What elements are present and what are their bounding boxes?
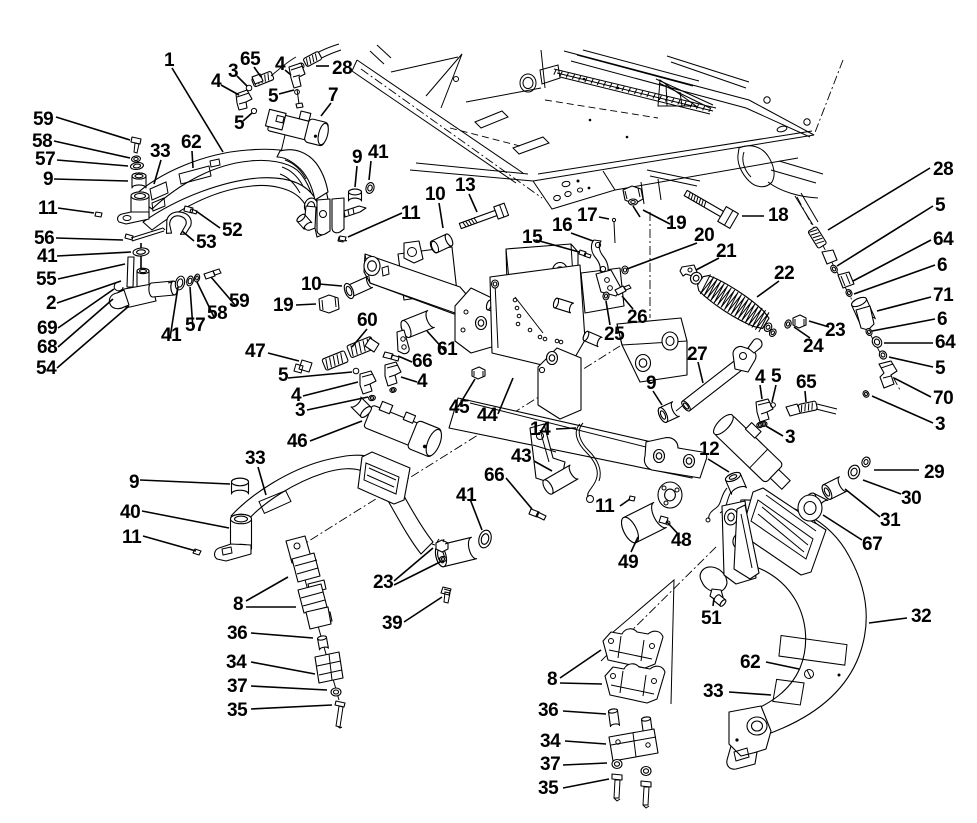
svg-text:71: 71 [933, 285, 954, 306]
svg-text:9: 9 [129, 472, 139, 493]
svg-text:11: 11 [595, 496, 615, 517]
svg-text:6: 6 [937, 309, 947, 330]
svg-text:30: 30 [901, 488, 921, 509]
svg-text:7: 7 [328, 85, 338, 106]
svg-text:34: 34 [540, 731, 561, 752]
svg-text:55: 55 [36, 269, 57, 290]
svg-text:3: 3 [295, 400, 305, 421]
svg-text:33: 33 [150, 141, 170, 162]
svg-text:41: 41 [368, 142, 389, 163]
svg-text:6: 6 [937, 255, 947, 276]
svg-text:13: 13 [455, 175, 475, 196]
svg-text:51: 51 [701, 608, 722, 629]
svg-text:59: 59 [33, 109, 53, 130]
svg-text:57: 57 [185, 315, 205, 336]
svg-text:16: 16 [552, 215, 572, 236]
svg-text:40: 40 [120, 502, 140, 523]
svg-text:21: 21 [716, 241, 737, 262]
svg-text:11: 11 [122, 527, 142, 548]
svg-text:19: 19 [666, 213, 686, 234]
svg-text:27: 27 [687, 344, 707, 365]
svg-text:67: 67 [862, 534, 882, 555]
svg-text:8: 8 [547, 669, 557, 690]
svg-text:20: 20 [694, 225, 714, 246]
svg-text:5: 5 [935, 358, 946, 379]
svg-text:3: 3 [935, 414, 945, 435]
svg-text:52: 52 [222, 220, 242, 241]
svg-text:60: 60 [357, 310, 377, 331]
svg-text:14: 14 [530, 419, 551, 440]
svg-text:48: 48 [671, 530, 691, 551]
svg-text:34: 34 [226, 652, 247, 673]
svg-text:62: 62 [181, 132, 201, 153]
svg-text:32: 32 [911, 606, 931, 627]
svg-text:4: 4 [275, 54, 286, 75]
svg-text:10: 10 [301, 274, 321, 295]
svg-text:17: 17 [577, 205, 597, 226]
svg-text:66: 66 [484, 465, 504, 486]
svg-text:5: 5 [234, 113, 245, 134]
svg-text:43: 43 [511, 446, 531, 467]
svg-text:36: 36 [227, 623, 247, 644]
svg-text:10: 10 [425, 184, 445, 205]
svg-text:31: 31 [880, 510, 901, 531]
svg-text:5: 5 [935, 195, 946, 216]
svg-text:41: 41 [456, 485, 477, 506]
svg-text:26: 26 [627, 307, 647, 328]
svg-text:64: 64 [933, 229, 954, 250]
svg-text:46: 46 [287, 431, 307, 452]
svg-text:39: 39 [382, 613, 402, 634]
svg-text:37: 37 [227, 676, 247, 697]
svg-text:23: 23 [373, 572, 393, 593]
svg-text:65: 65 [796, 372, 817, 393]
svg-text:35: 35 [538, 778, 559, 799]
svg-text:65: 65 [240, 49, 261, 70]
svg-text:12: 12 [699, 439, 719, 460]
svg-text:62: 62 [740, 652, 760, 673]
svg-text:37: 37 [540, 754, 560, 775]
svg-text:28: 28 [933, 159, 953, 180]
svg-text:35: 35 [227, 700, 248, 721]
svg-text:11: 11 [401, 203, 421, 224]
svg-text:4: 4 [417, 371, 428, 392]
svg-text:2: 2 [46, 293, 56, 314]
svg-text:61: 61 [437, 339, 458, 360]
svg-text:15: 15 [522, 227, 543, 248]
svg-text:68: 68 [37, 337, 57, 358]
svg-text:28: 28 [332, 58, 352, 79]
svg-text:36: 36 [538, 700, 558, 721]
svg-text:25: 25 [604, 324, 625, 345]
svg-text:70: 70 [933, 388, 953, 409]
svg-text:24: 24 [803, 336, 824, 357]
svg-text:29: 29 [924, 462, 944, 483]
svg-text:47: 47 [245, 341, 265, 362]
svg-text:4: 4 [211, 71, 222, 92]
svg-text:9: 9 [646, 373, 656, 394]
svg-text:41: 41 [161, 325, 182, 346]
svg-text:3: 3 [228, 61, 238, 82]
svg-text:69: 69 [37, 318, 57, 339]
svg-text:45: 45 [449, 397, 470, 418]
svg-text:3: 3 [785, 427, 795, 448]
svg-text:33: 33 [703, 681, 723, 702]
svg-text:9: 9 [43, 169, 53, 190]
svg-text:64: 64 [935, 332, 956, 353]
svg-text:5: 5 [268, 86, 279, 107]
svg-text:41: 41 [37, 246, 58, 267]
svg-text:59: 59 [229, 291, 249, 312]
svg-text:57: 57 [35, 149, 55, 170]
svg-text:1: 1 [164, 50, 175, 71]
svg-text:53: 53 [196, 232, 216, 253]
svg-text:4: 4 [755, 367, 766, 388]
svg-text:5: 5 [771, 366, 782, 387]
svg-text:8: 8 [233, 594, 243, 615]
svg-text:66: 66 [412, 351, 432, 372]
svg-text:58: 58 [207, 303, 227, 324]
svg-text:22: 22 [774, 263, 794, 284]
svg-text:11: 11 [38, 198, 58, 219]
svg-text:9: 9 [352, 147, 362, 168]
svg-text:44: 44 [477, 405, 498, 426]
svg-text:23: 23 [825, 320, 845, 341]
svg-text:33: 33 [245, 448, 265, 469]
svg-text:54: 54 [36, 358, 57, 379]
svg-text:49: 49 [618, 552, 638, 573]
svg-text:18: 18 [768, 205, 788, 226]
svg-text:5: 5 [278, 365, 289, 386]
svg-text:19: 19 [273, 295, 293, 316]
